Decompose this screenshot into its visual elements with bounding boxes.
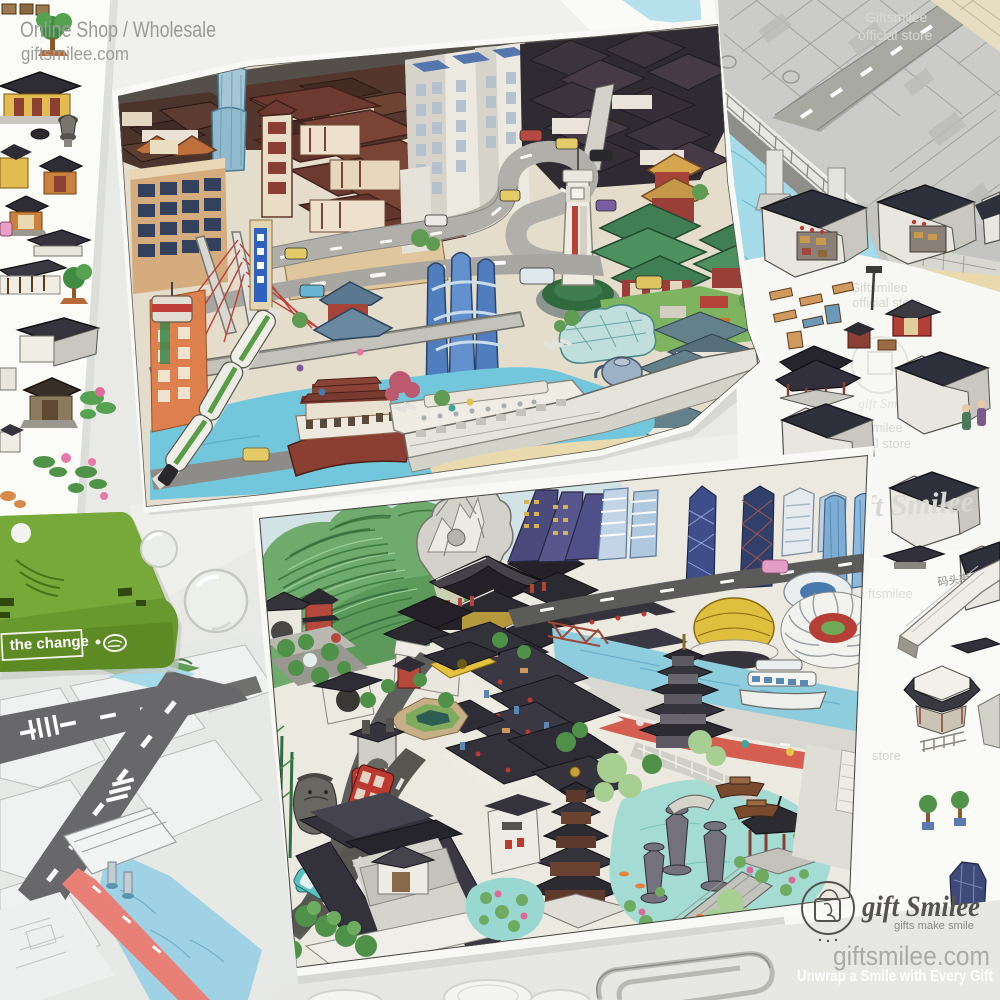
svg-text:giftsmilee.com: giftsmilee.com: [21, 44, 129, 64]
svg-text:giftsmilee.com: giftsmilee.com: [833, 941, 990, 971]
svg-text:gifts make smile: gifts make smile: [894, 920, 974, 932]
svg-text:Giftsmilee: Giftsmilee: [850, 280, 908, 295]
svg-text:Online Shop / Wholesale: Online Shop / Wholesale: [20, 17, 216, 42]
svg-text:official store: official store: [858, 27, 933, 43]
svg-text:Giftsmilee: Giftsmilee: [865, 9, 927, 25]
svg-text:gift Smilee: gift Smilee: [861, 890, 980, 923]
svg-text:Unwrap a Smile with Every Gift: Unwrap a Smile with Every Gift: [797, 968, 994, 985]
svg-text:store: store: [872, 748, 901, 763]
